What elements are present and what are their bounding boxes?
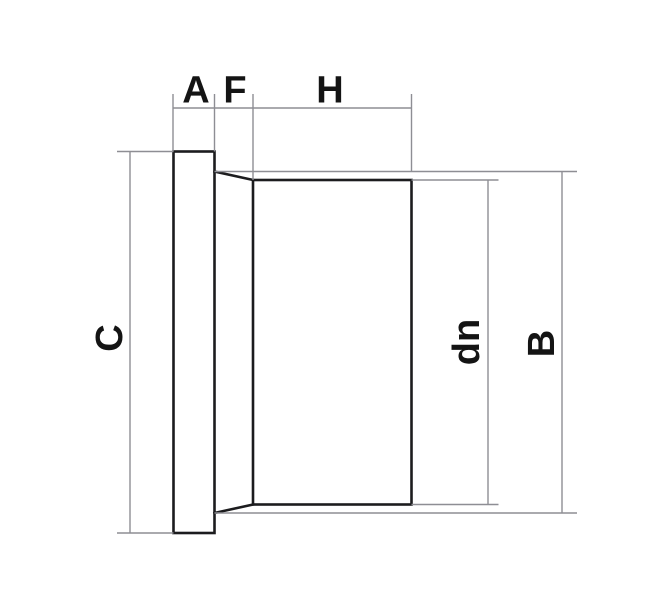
taper-top-line <box>215 172 254 181</box>
flange-fitting-dimension-drawing: A F H C dn B <box>0 0 663 590</box>
spigot-body-outline <box>253 180 412 505</box>
dim-label-dn: dn <box>446 319 488 365</box>
dim-label-f: F <box>223 70 246 112</box>
part-outline <box>174 152 412 534</box>
flange-outline <box>174 152 215 534</box>
dim-label-h: H <box>316 70 343 112</box>
technical-drawing-page: A F H C dn B <box>0 0 663 590</box>
dim-label-c: C <box>89 324 131 351</box>
dimension-labels: A F H C dn B <box>89 70 563 366</box>
dim-label-a: A <box>182 70 209 112</box>
dimension-lines <box>117 94 577 533</box>
taper-bottom-line <box>215 505 254 514</box>
dim-label-b: B <box>521 330 563 357</box>
